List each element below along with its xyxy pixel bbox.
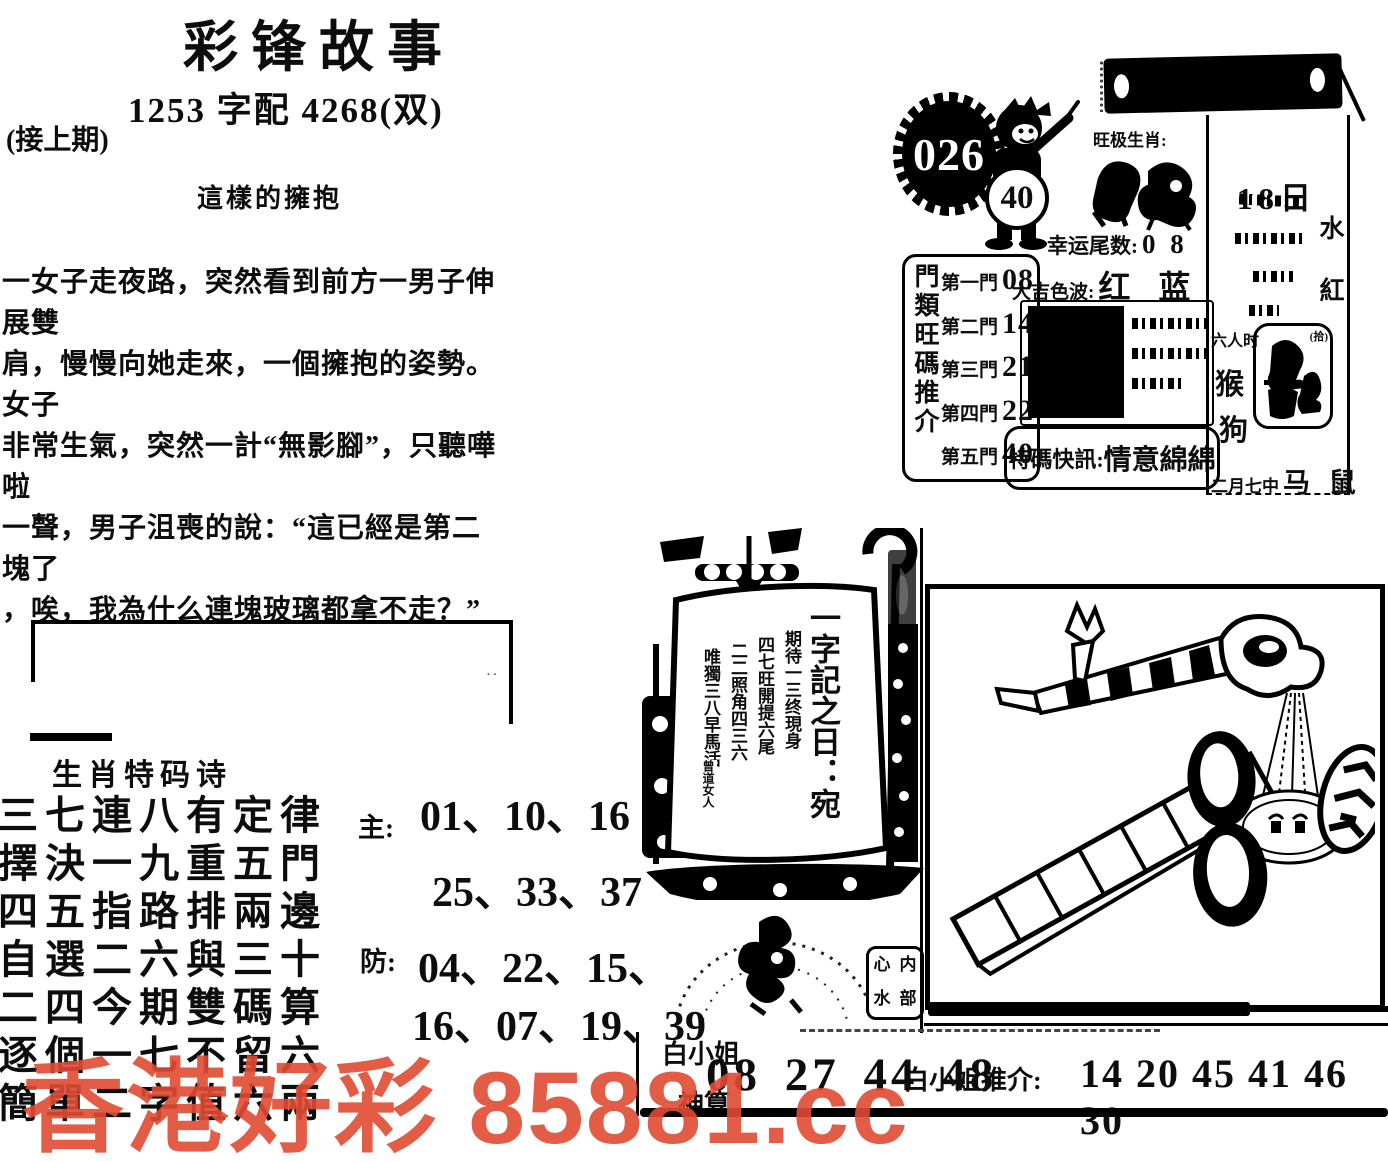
stray-dots: ·· — [486, 668, 499, 684]
site-watermark: 香港好彩 85881.cc — [22, 1026, 910, 1162]
calendar-panel: 18日 水 紅 六人时 猴 狗 (拾) 二月七中 马 鼠 — [1206, 115, 1350, 495]
rebus-bottom-bar-thin — [1248, 1006, 1388, 1012]
guard-numbers-label: 防: — [360, 940, 396, 979]
hot-zodiac-label: 旺极生肖: — [1093, 126, 1167, 151]
calendar-noise — [1235, 233, 1307, 244]
door-label: 第一門 — [941, 273, 998, 294]
sail-line-3: 二二照角四三六 — [725, 642, 750, 782]
calendar-guest-label: 六人时 — [1211, 327, 1259, 351]
calendar-noise — [1253, 271, 1293, 282]
sail-main-text: 一字記之日：宛 — [802, 602, 842, 832]
guard-numbers-line1: 04、22、15、 — [418, 934, 670, 995]
door-label: 第四門 — [941, 404, 998, 425]
note-box — [1020, 300, 1214, 426]
illegible-text-line — [1132, 348, 1206, 359]
bracket-left-line — [31, 620, 35, 682]
door-label: 第二門 — [941, 317, 998, 338]
lucky-tail-value: 0 8 — [1142, 229, 1188, 259]
stylized-zodiac-glyphs — [1080, 150, 1200, 238]
bracket-bottom-bar — [30, 733, 112, 741]
story-text: 一女子走夜路，突然看到前方一男子伸展雙 肩，慢慢向她走來，一個擁抱的姿勢。女子 … — [2, 262, 502, 631]
special-flash-label: 特碼快訊: — [1008, 442, 1103, 474]
recommend-label: 白小姐推介: — [903, 1060, 1042, 1097]
sail-line-1: 期待一三终現身 — [779, 630, 804, 770]
lucky-tail-label: 幸运尾数: — [1047, 234, 1138, 258]
poem-heading: 生肖特码诗 — [52, 750, 232, 794]
illegible-text-line — [1132, 318, 1206, 329]
main-numbers-line2: 25、33、37 — [432, 858, 642, 919]
lucky-tail-row: 幸运尾数: 0 8 — [1047, 229, 1188, 260]
story-title: 這樣的擁抱 — [197, 178, 342, 215]
banner-dot-left — [1114, 74, 1130, 98]
calendar-animal-box: (拾) — [1253, 323, 1333, 429]
main-numbers-line1: 01、10、16 — [420, 782, 630, 843]
door-label: 第三門 — [941, 360, 998, 381]
banner-dot-right — [1310, 68, 1326, 92]
calendar-zodiac-1: 猴 — [1215, 361, 1244, 403]
calendar-bottom-big: 马 鼠 — [1283, 468, 1362, 498]
bracket-top-line — [31, 620, 513, 624]
calendar-right-column: 水 紅 — [1315, 215, 1343, 302]
sail-line-2: 四七旺開提六尾 — [752, 636, 777, 776]
page-title: 彩锋故事 — [183, 2, 455, 82]
special-flash-value: 情意綿綿 — [1104, 438, 1216, 478]
recommend-numbers: 14 20 45 41 46 30 — [1080, 1050, 1388, 1144]
tip-sheet-page: 彩锋故事 1253 字配 4268(双) (接上期) 這樣的擁抱 一女子走夜路，… — [0, 0, 1388, 1162]
bracket-right-line — [509, 620, 513, 724]
pairing-subtitle: 1253 字配 4268(双) — [128, 82, 444, 133]
top-banner — [1103, 53, 1342, 113]
boy-number: 40 — [1001, 180, 1034, 217]
calendar-color-char: 紅 — [1316, 277, 1343, 302]
insider-tip-stamp: 心 内 水 部 — [866, 946, 924, 1020]
calendar-element-char: 水 — [1316, 215, 1343, 240]
continued-note: (接上期) — [6, 118, 109, 158]
calendar-bottom-small: 二月七中 — [1211, 477, 1279, 496]
illegible-text-line — [1132, 378, 1184, 389]
stamp-char: 水 — [869, 983, 895, 1017]
small-black-tag — [888, 550, 916, 640]
calendar-noise — [1249, 305, 1279, 316]
rebus-frame-left-line — [920, 528, 923, 1033]
calendar-animal-blobs — [1256, 328, 1324, 420]
main-numbers-label: 主: — [358, 806, 394, 845]
special-flash-box: 特碼快訊: 情意綿綿 — [1004, 426, 1220, 490]
rebus-illustration — [935, 589, 1375, 995]
rebus-picture-box — [925, 584, 1385, 1010]
stamp-char: 部 — [895, 983, 921, 1017]
calendar-zodiac-2: 狗 — [1219, 407, 1248, 449]
rebus-underline — [924, 1023, 1388, 1026]
door-box-vertical-label: 門類旺碼推介 — [905, 257, 939, 479]
stamp-char: 心 — [869, 949, 895, 983]
door-label: 第五門 — [941, 447, 998, 468]
rebus-bottom-bar-thick — [928, 1002, 1250, 1016]
black-square — [1028, 306, 1124, 418]
stamp-char: 内 — [895, 949, 921, 983]
sail-seal: 曾道女人 — [700, 760, 717, 820]
calendar-bottom-row: 二月七中 马 鼠 — [1211, 461, 1362, 500]
boy-number-circle: 40 — [985, 166, 1049, 230]
